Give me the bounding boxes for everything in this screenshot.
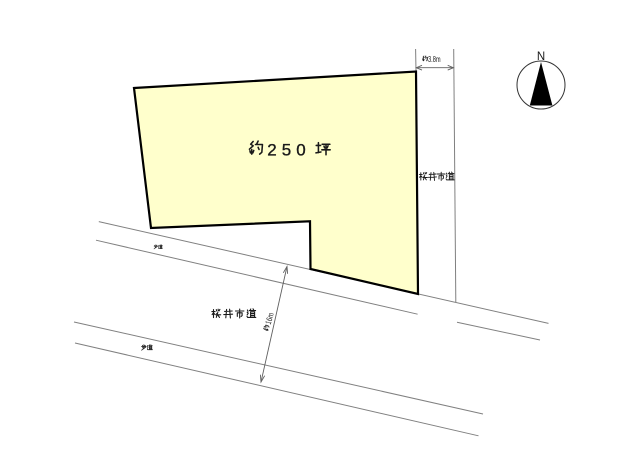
svg-text:3.8m: 3.8m [428,54,441,64]
svg-text:0: 0 [296,141,305,160]
svg-text:2: 2 [267,141,276,160]
svg-text:5: 5 [282,141,291,160]
svg-text:N: N [537,51,545,63]
